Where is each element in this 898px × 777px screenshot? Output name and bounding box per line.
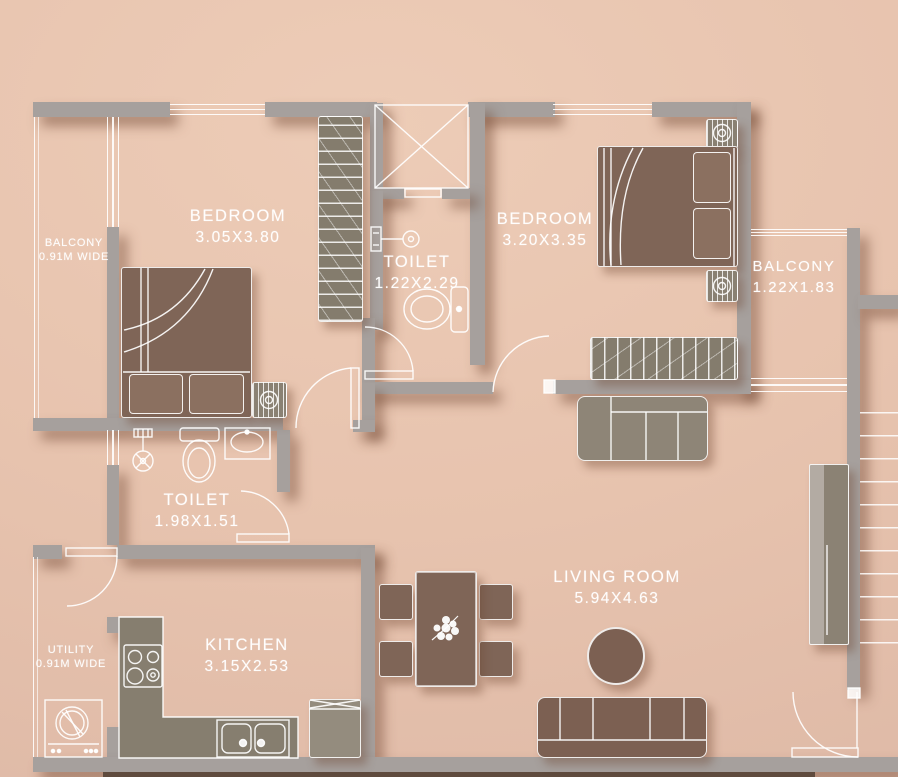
room-name: KITCHEN: [204, 634, 289, 656]
room-label-bedroom2: BEDROOM 3.20X3.35: [497, 208, 593, 252]
wall-top-1: [33, 102, 170, 117]
bedside-table-bedroom2-bottom: [706, 270, 738, 302]
wall-shaft-left: [370, 103, 383, 191]
sink-icon: [217, 720, 289, 757]
room-name: BEDROOM: [497, 208, 593, 230]
dining-table: [415, 571, 477, 687]
balcony-right-top-railing: [751, 229, 847, 236]
window-bedroom1-balcony: [107, 117, 119, 227]
room-name: BALCONY: [39, 236, 109, 250]
window-toilet2: [107, 430, 119, 465]
wall-bottom: [33, 757, 898, 772]
shower-toilet2-icon: [133, 429, 153, 471]
wall-bedroom2-left: [470, 103, 485, 365]
door-toilet2: [237, 491, 289, 542]
tv-unit: [809, 464, 849, 645]
room-dims: 1.22X2.29: [374, 273, 459, 295]
wall-toilet2-left: [107, 465, 119, 545]
wall-shaft-bottom-right: [442, 188, 470, 199]
room-dims: 1.98X1.51: [154, 511, 239, 533]
wall-kitchen-top: [117, 545, 375, 559]
wardrobe-bedroom1: [318, 116, 363, 322]
room-label-balcony-left: BALCONY 0.91M WIDE: [39, 236, 109, 264]
room-name: BALCONY: [753, 256, 836, 277]
room-dims: 3.20X3.35: [497, 230, 593, 252]
room-label-kitchen: KITCHEN 3.15X2.53: [204, 634, 289, 678]
wall-top-4: [652, 102, 750, 117]
door-bedroom1: [296, 368, 359, 428]
room-label-toilet1: TOILET 1.22X2.29: [374, 251, 459, 295]
pillow: [693, 208, 731, 259]
dining-chair: [479, 641, 513, 677]
room-dims: 5.94X4.63: [553, 588, 681, 610]
refrigerator: [309, 699, 361, 758]
room-dims: 3.05X3.80: [190, 227, 286, 249]
bedside-table-bedroom2-top: [706, 119, 738, 149]
wall-utility-divider-bottom: [107, 727, 119, 758]
wall-bedroom2-right: [737, 102, 751, 392]
wall-right-stub: [858, 295, 898, 309]
pillow: [693, 152, 731, 203]
hob-icon: [124, 645, 162, 687]
wall-bedroom1-bottom: [33, 418, 283, 431]
wall-utility-divider-top: [107, 617, 119, 633]
wardrobe-bedroom2: [590, 337, 738, 380]
room-label-toilet2: TOILET 1.98X1.51: [154, 489, 239, 533]
pillow: [189, 374, 244, 414]
window-top-right: [553, 104, 652, 115]
room-name: LIVING ROOM: [553, 566, 681, 588]
wall-hall-cap: [353, 420, 375, 432]
washing-machine-icon: [45, 700, 102, 757]
room-label-balcony-right: BALCONY 1.22X1.83: [753, 256, 836, 298]
wall-hall-horizontal: [362, 382, 493, 394]
bedside-table-bedroom1: [252, 382, 287, 418]
room-name: BEDROOM: [190, 205, 286, 227]
room-dims: 1.22X1.83: [753, 277, 836, 298]
room-label-utility: UTILITY 0.91M WIDE: [36, 643, 106, 671]
sofa-l-shaped: [577, 396, 708, 461]
round-coffee-table: [587, 627, 645, 685]
room-label-living: LIVING ROOM 5.94X4.63: [553, 566, 681, 610]
shaft-duct: [375, 105, 468, 197]
room-name: TOILET: [374, 251, 459, 273]
pillow: [129, 374, 183, 414]
wc-toilet2-icon: [180, 428, 219, 482]
balcony-left-railing: [34, 117, 39, 418]
room-name: TOILET: [154, 489, 239, 511]
staircase: [860, 412, 898, 645]
window-top-left: [170, 104, 265, 115]
dining-chair: [479, 584, 513, 620]
wall-kitchen-right: [361, 548, 375, 758]
room-label-bedroom1: BEDROOM 3.05X3.80: [190, 205, 286, 249]
balcony-right-bottom-railing: [751, 378, 847, 392]
door-main-entrance: [792, 688, 860, 757]
dining-chair: [379, 584, 413, 620]
room-dims: 3.15X2.53: [204, 656, 289, 678]
room-name: UTILITY: [36, 643, 106, 657]
door-utility: [66, 548, 117, 606]
wall-hall-upper: [362, 318, 375, 383]
wall-top-2: [265, 102, 377, 117]
basin-toilet2-icon: [225, 428, 270, 459]
dining-chair: [379, 641, 413, 677]
sofa-three-seat: [537, 697, 707, 758]
room-dims: 0.91M WIDE: [36, 657, 106, 671]
adjacent-unit-strip: [103, 772, 815, 777]
room-dims: 0.91M WIDE: [39, 250, 109, 264]
door-bedroom2: [493, 336, 555, 393]
wall-bedroom2-bottom: [553, 380, 751, 394]
wall-toilet2-right: [277, 430, 290, 492]
floor-plan: BEDROOM 3.05X3.80 TOILET 1.22X2.29 BEDRO…: [0, 0, 898, 777]
